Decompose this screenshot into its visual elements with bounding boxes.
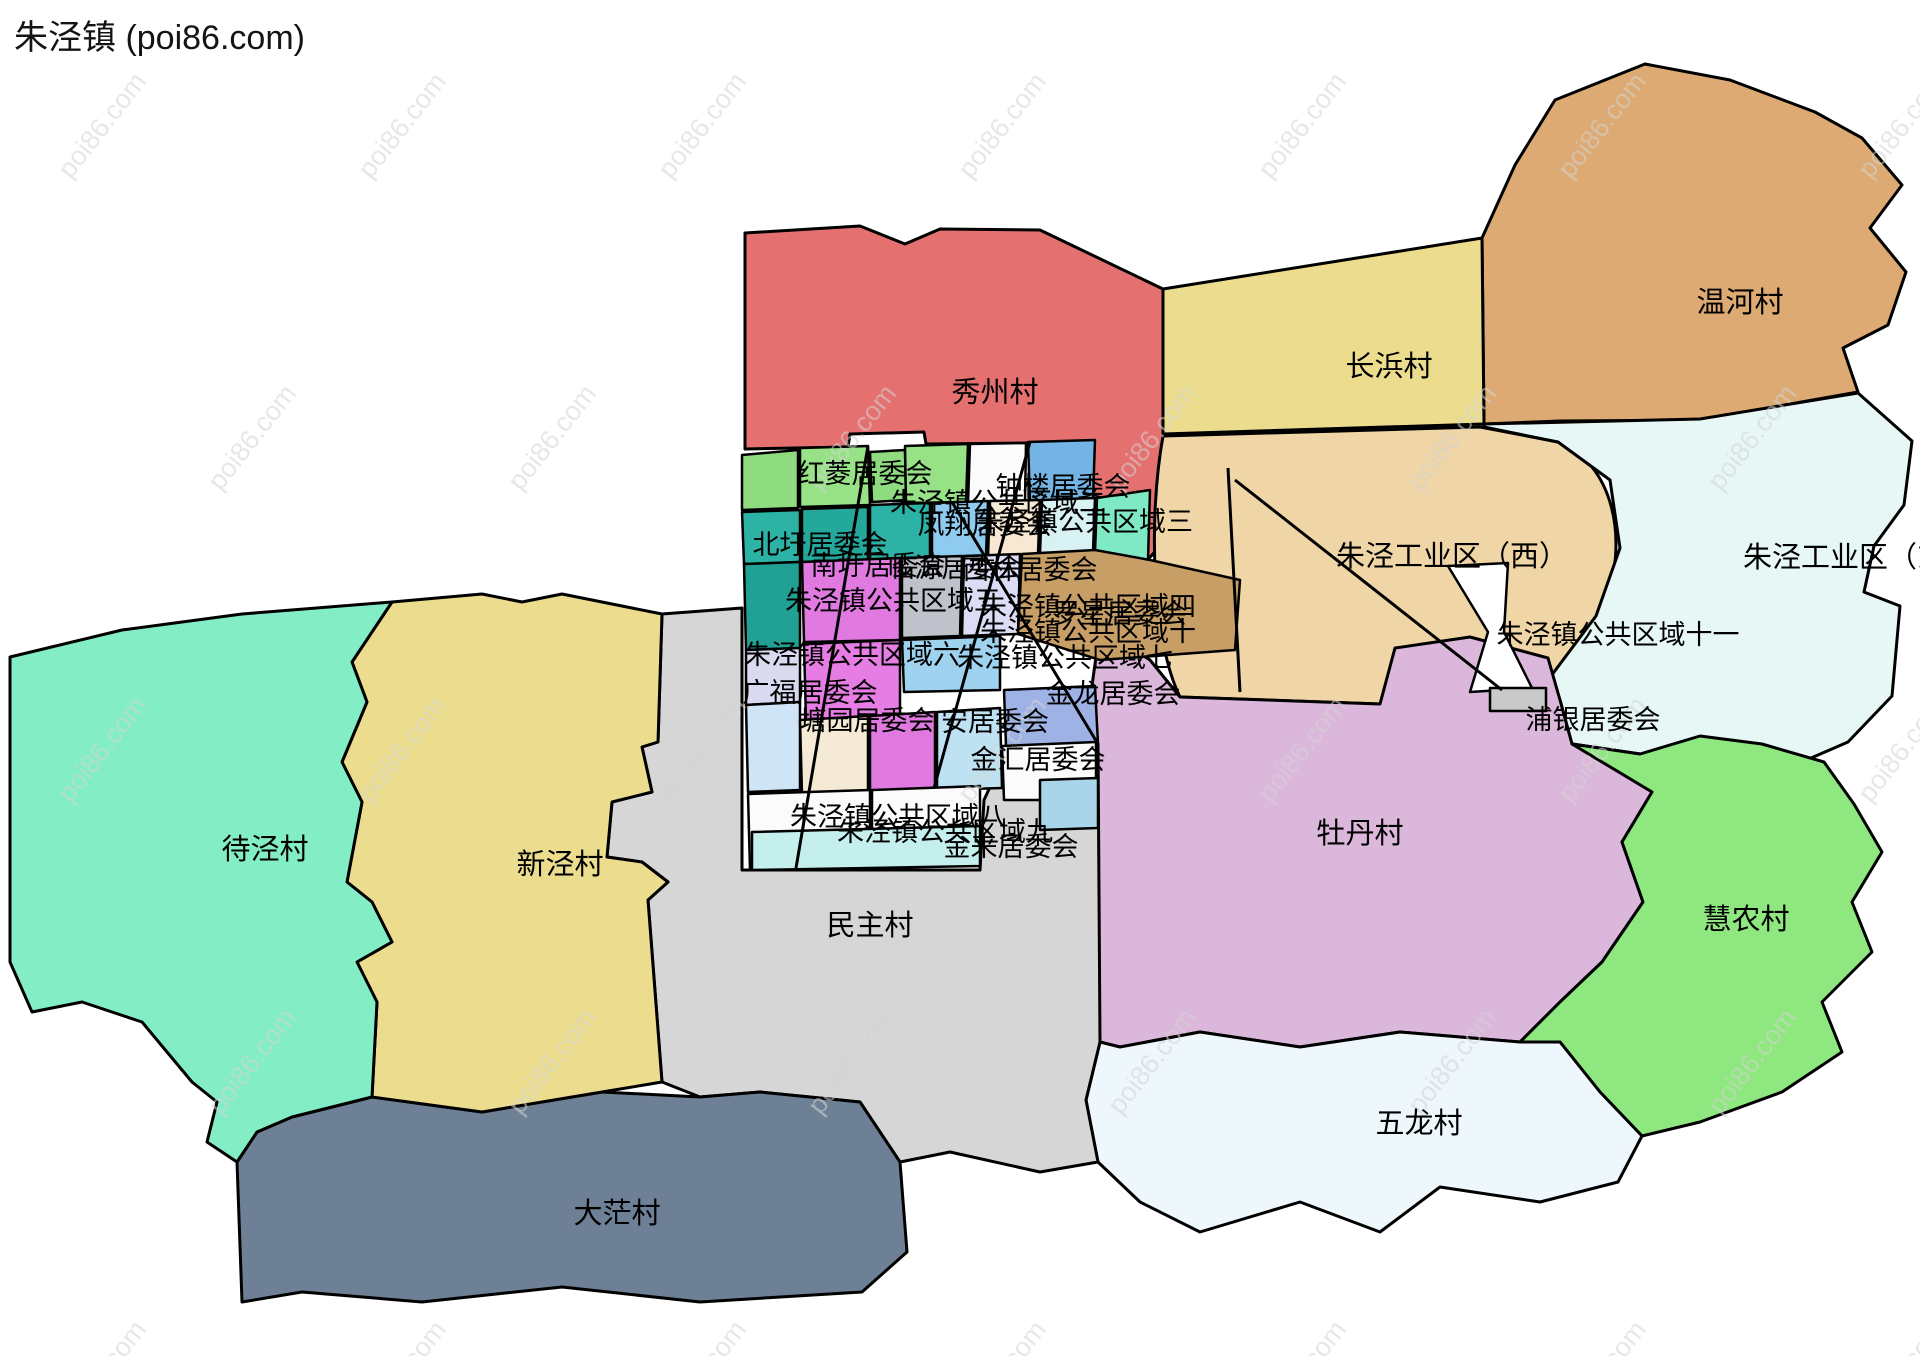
map-label-anju: 安居委会: [941, 708, 1049, 736]
map-page: 朱泾镇 (poi86.com) poi86.compoi86.compoi86.…: [0, 0, 1920, 1356]
map-label-huinong: 慧农村: [1702, 905, 1789, 935]
map-label-area5: 朱泾镇公共区域五: [785, 587, 1001, 615]
map-label-industrial-east: 朱泾工业区（东）: [1743, 543, 1920, 573]
map-label-daijing: 待泾村: [221, 835, 308, 865]
map-label-industrial-west: 朱泾工业区（西）: [1336, 542, 1568, 572]
cell-green-1: [742, 450, 798, 510]
map-label-hongling: 红菱居委会: [798, 460, 933, 488]
map-canvas: [0, 0, 1920, 1356]
map-label-jinlai: 金来居委会: [944, 833, 1079, 861]
map-label-minzhu: 民主村: [826, 911, 913, 941]
map-label-wenhe: 温河村: [1696, 288, 1783, 318]
region-changbang: [1163, 238, 1484, 434]
map-label-fengxiang: 凤翔居委会: [918, 511, 1053, 539]
region-wenhe: [1482, 64, 1906, 424]
map-label-zhonglou: 钟楼居委会: [996, 473, 1131, 501]
map-label-area7: 朱泾镇公共区域七: [957, 644, 1173, 672]
cell-paleblue-1: [746, 702, 800, 792]
map-label-xilin: 西林居委会: [963, 556, 1098, 584]
map-label-xinjing: 新泾村: [516, 850, 603, 880]
map-label-changbang: 长浜村: [1345, 352, 1432, 382]
map-label-luoxing: 罗星居委会: [1053, 600, 1188, 628]
region-daijing: [10, 602, 392, 1162]
map-label-mudan: 牡丹村: [1316, 819, 1403, 849]
region-wulong: [1086, 1032, 1642, 1232]
page-title: 朱泾镇 (poi86.com): [14, 10, 305, 59]
map-label-tangyuan: 塘园居委会: [800, 707, 935, 735]
map-label-jinlong: 金龙居委会: [1046, 680, 1181, 708]
map-label-xiuzhou: 秀州村: [951, 378, 1038, 408]
map-label-wulong: 五龙村: [1375, 1109, 1462, 1139]
map-label-jinhui: 金汇居委会: [971, 746, 1106, 774]
map-label-damang: 大茫村: [573, 1199, 660, 1229]
map-label-area11: 朱泾镇公共区域十一: [1497, 621, 1740, 649]
map-label-puyin: 浦银居委会: [1526, 706, 1661, 734]
region-damang: [237, 1092, 907, 1302]
map-label-area6: 朱泾镇公共区域六: [744, 641, 960, 669]
map-label-guangfu: 广福居委会: [743, 679, 878, 707]
